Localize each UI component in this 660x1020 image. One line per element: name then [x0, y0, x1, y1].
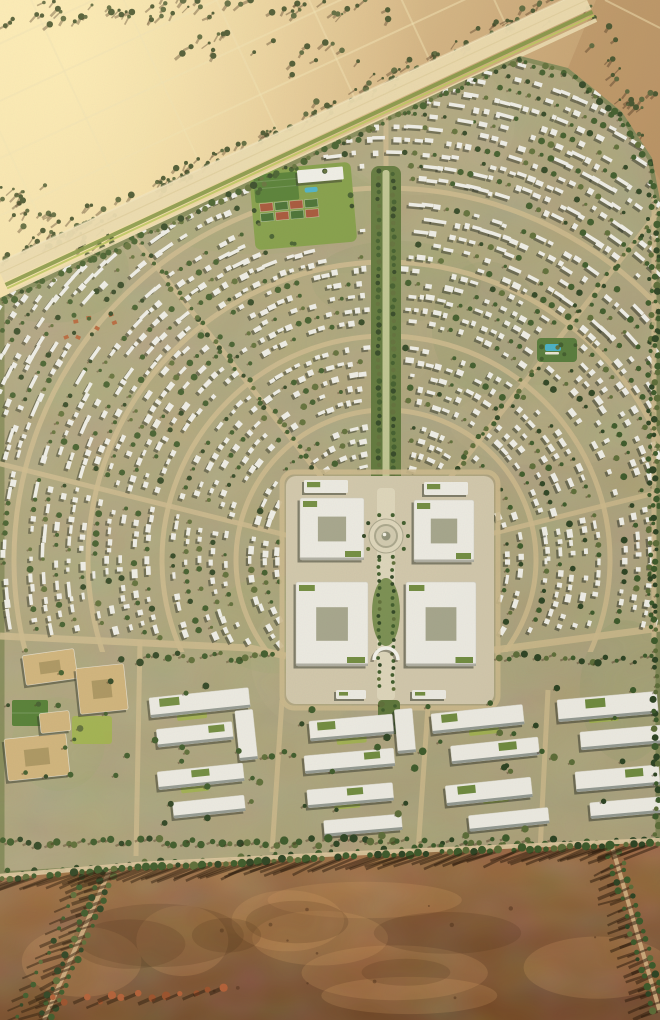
scene-svg [0, 0, 660, 1020]
aerial-masterplan-render [0, 0, 660, 1020]
film-grain [0, 0, 660, 1020]
